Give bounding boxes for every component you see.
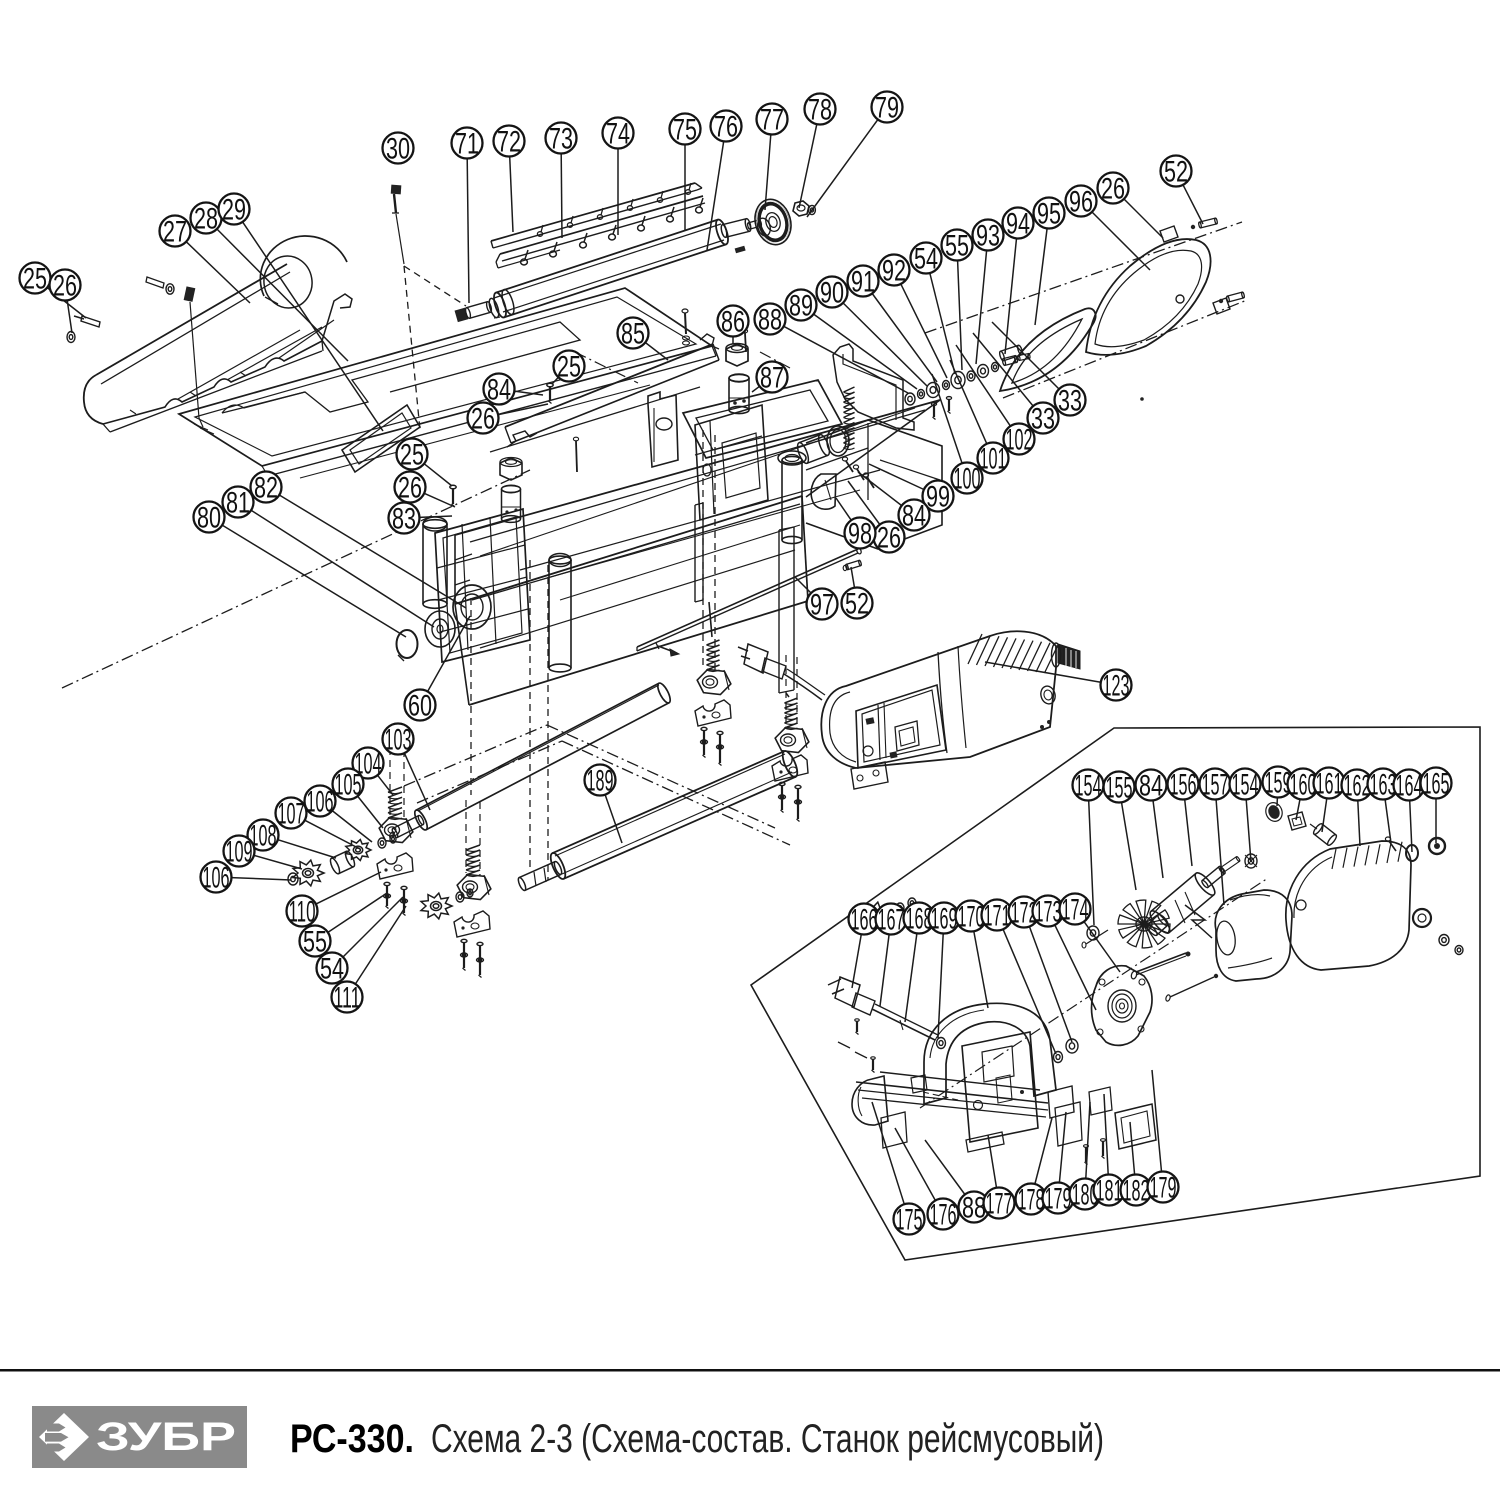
svg-text:77: 77	[760, 104, 784, 137]
svg-text:55: 55	[945, 230, 969, 263]
svg-text:82: 82	[254, 472, 278, 505]
svg-text:99: 99	[926, 481, 950, 514]
svg-text:РС-330.: РС-330.	[290, 1417, 414, 1461]
svg-text:157: 157	[1202, 769, 1229, 802]
svg-text:84: 84	[902, 500, 926, 533]
svg-text:89: 89	[789, 290, 813, 323]
svg-text:176: 176	[930, 1199, 957, 1232]
svg-text:33: 33	[1031, 403, 1055, 436]
svg-text:177: 177	[986, 1188, 1013, 1221]
svg-text:91: 91	[851, 266, 875, 299]
svg-text:107: 107	[278, 798, 305, 831]
svg-text:154: 154	[1075, 770, 1102, 803]
svg-text:78: 78	[808, 94, 832, 127]
svg-text:30: 30	[386, 133, 410, 166]
svg-text:178: 178	[1018, 1184, 1045, 1217]
svg-text:96: 96	[1069, 186, 1093, 219]
svg-text:100: 100	[954, 463, 981, 496]
svg-text:171: 171	[984, 900, 1011, 933]
svg-text:179: 179	[1045, 1183, 1072, 1216]
svg-text:84: 84	[1139, 770, 1163, 803]
svg-text:26: 26	[53, 270, 77, 303]
svg-text:83: 83	[392, 503, 416, 536]
svg-text:52: 52	[845, 588, 869, 621]
svg-text:101: 101	[980, 443, 1007, 476]
svg-text:73: 73	[549, 123, 573, 156]
svg-text:87: 87	[760, 362, 784, 395]
svg-text:80: 80	[197, 502, 221, 535]
svg-text:102: 102	[1006, 424, 1033, 457]
svg-text:26: 26	[398, 472, 422, 505]
svg-text:90: 90	[820, 277, 844, 310]
svg-text:189: 189	[587, 765, 614, 798]
svg-text:169: 169	[931, 903, 958, 936]
svg-text:25: 25	[557, 351, 581, 384]
svg-text:88: 88	[962, 1192, 986, 1225]
svg-text:29: 29	[222, 194, 246, 227]
svg-text:98: 98	[848, 518, 872, 551]
svg-text:97: 97	[810, 589, 834, 622]
svg-text:25: 25	[23, 263, 47, 296]
svg-text:103: 103	[385, 724, 412, 757]
svg-text:167: 167	[878, 904, 905, 937]
svg-text:164: 164	[1396, 770, 1423, 803]
svg-text:75: 75	[673, 114, 697, 147]
svg-text:156: 156	[1170, 769, 1197, 802]
svg-text:81: 81	[226, 487, 250, 520]
svg-text:72: 72	[497, 126, 521, 159]
svg-text:ЗУБР: ЗУБР	[96, 1415, 236, 1459]
svg-text:94: 94	[1006, 208, 1030, 241]
svg-text:26: 26	[471, 403, 495, 436]
svg-text:123: 123	[1103, 670, 1130, 703]
svg-text:25: 25	[400, 439, 424, 472]
svg-text:175: 175	[896, 1204, 923, 1237]
svg-text:160: 160	[1290, 769, 1317, 802]
svg-text:154: 154	[1232, 769, 1259, 802]
svg-text:95: 95	[1037, 198, 1061, 231]
svg-text:109: 109	[226, 836, 253, 869]
svg-text:181: 181	[1096, 1175, 1123, 1208]
svg-text:76: 76	[714, 111, 738, 144]
svg-text:74: 74	[606, 118, 630, 151]
svg-text:92: 92	[882, 255, 906, 288]
svg-text:179: 179	[1150, 1172, 1177, 1205]
svg-text:60: 60	[408, 690, 432, 723]
svg-text:162: 162	[1344, 770, 1371, 803]
svg-text:174: 174	[1062, 894, 1089, 927]
svg-text:110: 110	[289, 896, 316, 929]
svg-text:33: 33	[1058, 385, 1082, 418]
svg-text:166: 166	[851, 904, 878, 937]
svg-text:170: 170	[958, 901, 985, 934]
svg-text:165: 165	[1423, 768, 1450, 801]
svg-text:173: 173	[1035, 896, 1062, 929]
svg-text:54: 54	[914, 243, 938, 276]
svg-text:27: 27	[163, 216, 187, 249]
svg-text:106: 106	[307, 786, 334, 819]
svg-text:26: 26	[1101, 173, 1125, 206]
svg-text:161: 161	[1316, 768, 1343, 801]
svg-text:52: 52	[1164, 156, 1188, 189]
svg-text:106: 106	[203, 862, 230, 895]
svg-text:111: 111	[334, 982, 361, 1015]
svg-text:182: 182	[1123, 1175, 1150, 1208]
svg-text:86: 86	[721, 306, 745, 339]
svg-text:26: 26	[877, 522, 901, 555]
svg-text:105: 105	[335, 769, 362, 802]
svg-text:88: 88	[758, 304, 782, 337]
svg-text:85: 85	[621, 318, 645, 351]
svg-text:Схема 2-3 (Схема-состав. Стано: Схема 2-3 (Схема-состав. Станок рейсмусо…	[431, 1417, 1104, 1461]
svg-text:28: 28	[194, 203, 218, 236]
svg-text:93: 93	[976, 220, 1000, 253]
svg-text:79: 79	[875, 92, 899, 125]
svg-text:71: 71	[455, 128, 479, 161]
svg-text:155: 155	[1106, 772, 1133, 805]
